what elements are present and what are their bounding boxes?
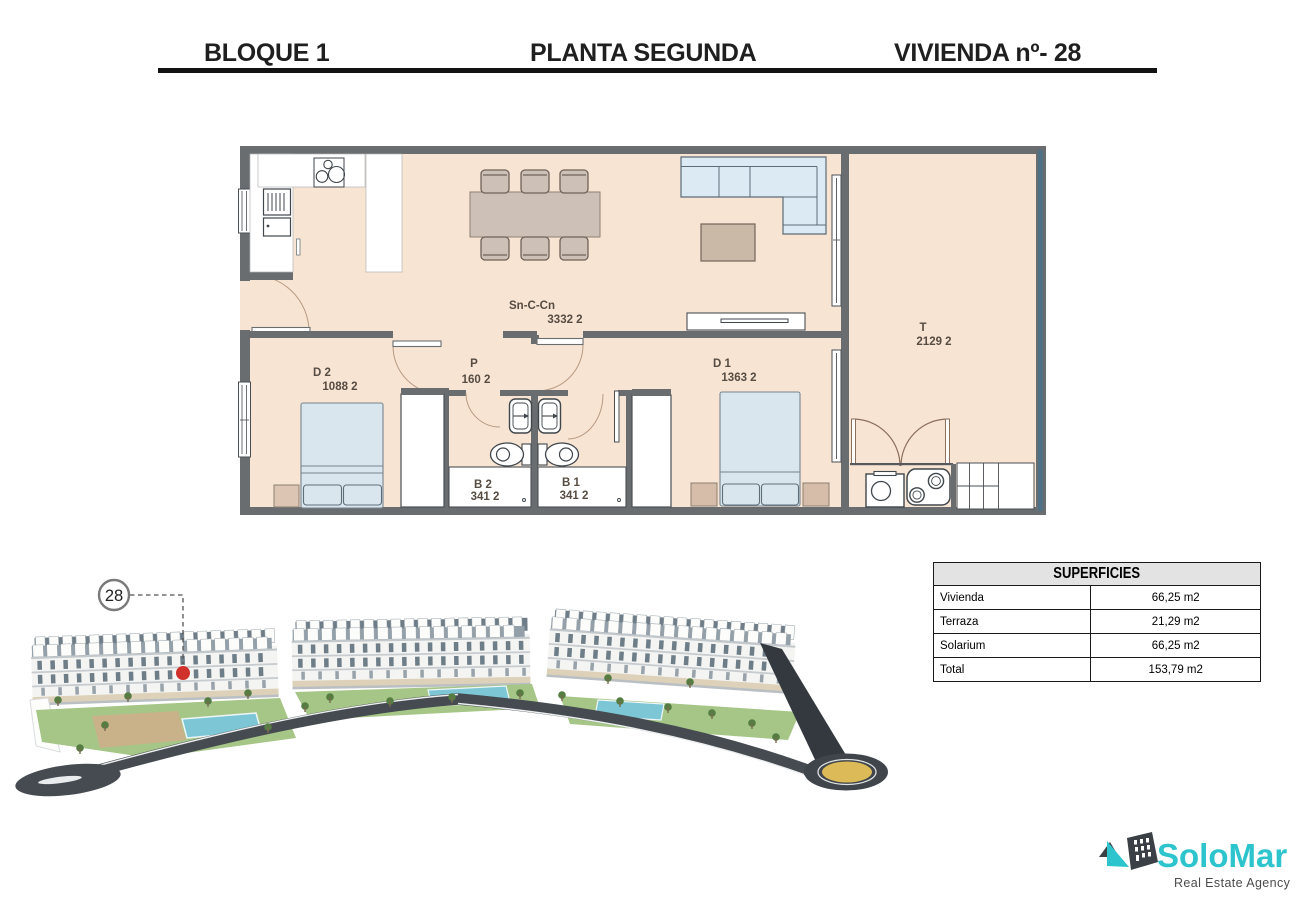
svg-text:B 1: B 1 (562, 477, 581, 489)
svg-text:D 2: D 2 (313, 367, 331, 379)
svg-text:341 2: 341 2 (560, 490, 589, 502)
svg-text:160 2: 160 2 (462, 374, 491, 386)
svg-text:T: T (919, 322, 926, 334)
svg-text:D 1: D 1 (713, 358, 732, 370)
svg-text:Sn-C-Cn: Sn-C-Cn (509, 300, 555, 312)
svg-text:341 2: 341 2 (471, 491, 500, 503)
svg-text:1363 2: 1363 2 (721, 372, 756, 384)
svg-text:28: 28 (105, 587, 123, 605)
svg-text:P: P (470, 358, 478, 370)
svg-text:B 2: B 2 (474, 479, 492, 491)
svg-text:3332 2: 3332 2 (547, 314, 582, 326)
svg-text:1088 2: 1088 2 (322, 381, 357, 393)
svg-text:2129 2: 2129 2 (916, 336, 951, 348)
